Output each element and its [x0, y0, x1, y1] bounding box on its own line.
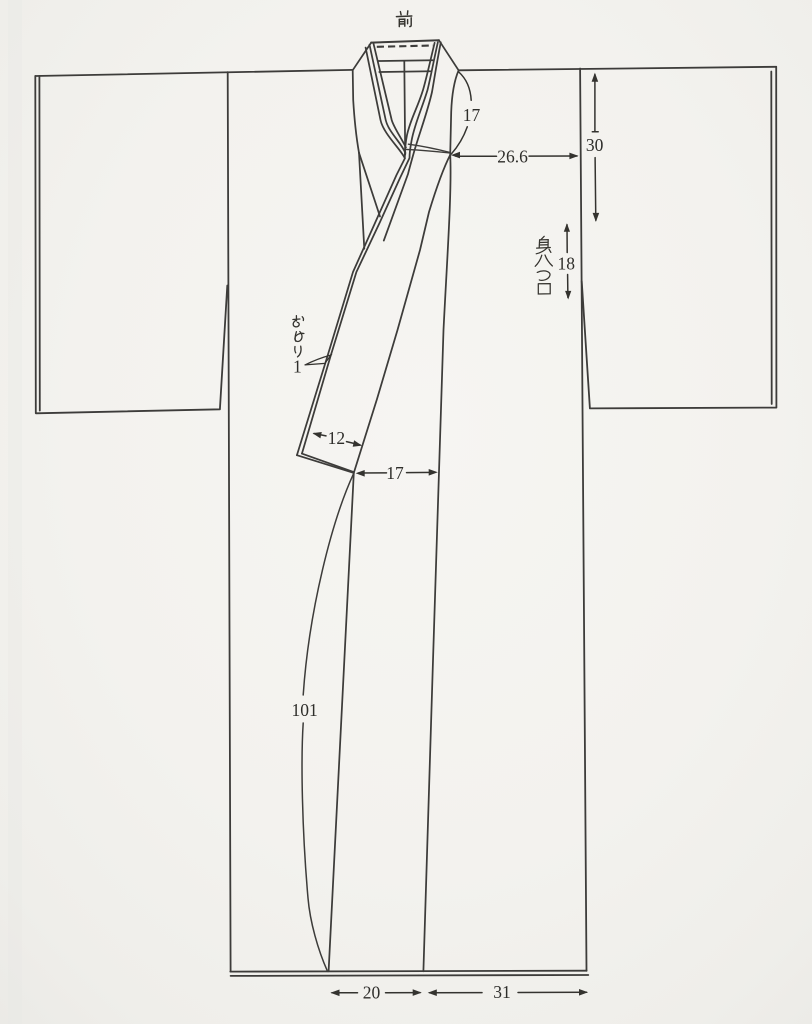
- svg-text:31: 31: [493, 982, 511, 1002]
- svg-text:30: 30: [586, 135, 604, 155]
- svg-text:20: 20: [363, 982, 381, 1002]
- svg-text:17: 17: [386, 463, 404, 483]
- svg-text:12: 12: [328, 428, 346, 448]
- svg-text:18: 18: [557, 253, 575, 273]
- svg-text:26.6: 26.6: [497, 146, 528, 166]
- svg-text:1: 1: [293, 357, 302, 377]
- svg-text:101: 101: [291, 700, 317, 720]
- svg-text:17: 17: [463, 105, 481, 125]
